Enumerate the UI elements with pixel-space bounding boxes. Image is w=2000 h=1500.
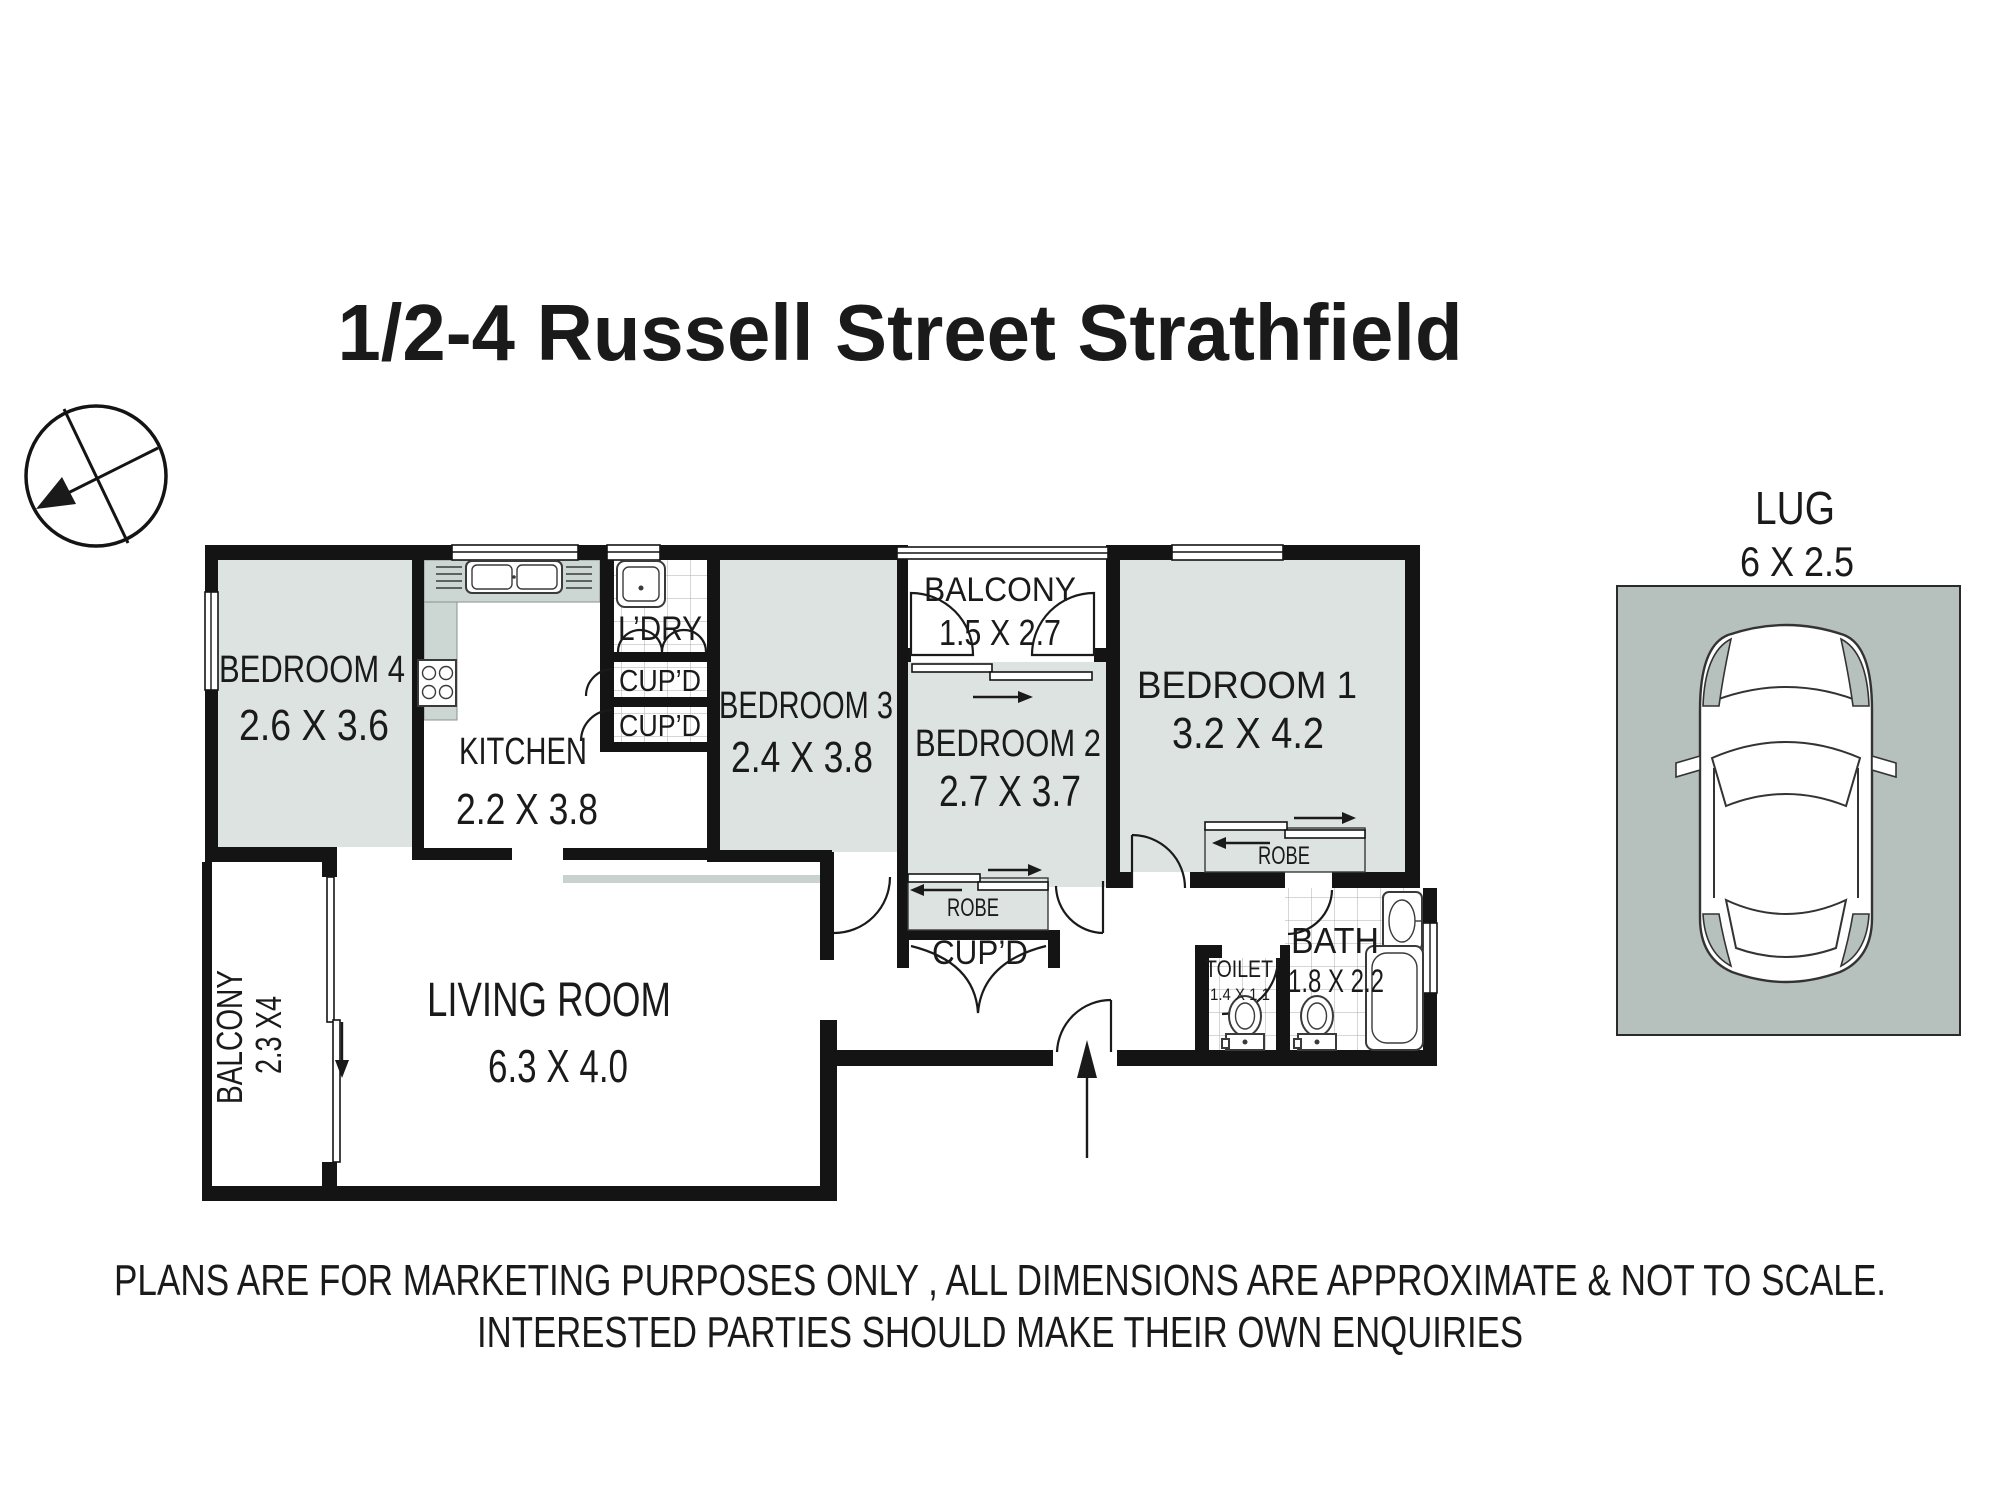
bedroom4-dims: 2.6 X 3.6 <box>239 701 389 750</box>
bedroom2-dims: 2.7 X 3.7 <box>939 767 1081 816</box>
disclaimer-line1: PLANS ARE FOR MARKETING PURPOSES ONLY , … <box>114 1256 1886 1305</box>
bath-dims: 1.8 X 2.2 <box>1288 963 1384 999</box>
disclaimer: PLANS ARE FOR MARKETING PURPOSES ONLY , … <box>114 1256 1886 1357</box>
balcony-top-label: BALCONY <box>924 571 1076 609</box>
car-icon <box>1676 625 1896 982</box>
bedroom1-label: BEDROOM 1 <box>1137 665 1357 707</box>
cupboard1-label: CUP’D <box>619 663 701 698</box>
laundry-tub-icon <box>617 561 665 607</box>
bedroom1-dims: 3.2 X 4.2 <box>1172 709 1324 758</box>
living-room-dims: 6.3 X 4.0 <box>488 1040 628 1092</box>
balcony-top-dims: 1.5 X 2.7 <box>939 612 1061 653</box>
living-room-label: LIVING ROOM <box>427 974 671 1027</box>
robe-bedroom2-label: ROBE <box>947 894 999 922</box>
floorplan-page: 1/2-4 Russell Street Strathfield <box>0 0 2000 1500</box>
bath-vanity-icon <box>1383 892 1423 950</box>
page-title: 1/2-4 Russell Street Strathfield <box>338 288 1463 377</box>
floorplan-canvas: 1/2-4 Russell Street Strathfield <box>0 0 2000 1500</box>
garage <box>1617 586 1960 1035</box>
balcony-railing <box>897 547 1108 559</box>
bedroom3-label: BEDROOM 3 <box>719 685 893 727</box>
laundry-label: L’DRY <box>618 610 702 648</box>
toilet-label: TOILET <box>1205 956 1273 983</box>
kitchen-label: KITCHEN <box>459 731 587 773</box>
cupboard2-label: CUP’D <box>619 708 701 743</box>
disclaimer-line2: INTERESTED PARTIES SHOULD MAKE THEIR OWN… <box>477 1308 1523 1357</box>
compass-icon <box>26 406 166 546</box>
bedroom2-door-swing <box>1056 886 1103 933</box>
bedroom2-label: BEDROOM 2 <box>915 723 1101 765</box>
garage-label: LUG <box>1755 482 1835 534</box>
balcony-side-label: BALCONY <box>209 970 250 1104</box>
balcony-side-dims: 2.3 X4 <box>248 996 289 1074</box>
garage-dims: 6 X 2.5 <box>1740 538 1854 585</box>
entry-arrow-icon <box>1077 1040 1097 1158</box>
bedroom4-label: BEDROOM 4 <box>219 649 405 691</box>
kitchen-dims: 2.2 X 3.8 <box>456 785 598 834</box>
cooktop-icon <box>418 660 456 706</box>
bedroom1-window-icon <box>1172 545 1283 560</box>
toilet-dims: 1.4 X 1.1 <box>1210 985 1270 1004</box>
bath-label: BATH <box>1291 920 1379 961</box>
bath-window-icon <box>1423 923 1437 993</box>
cupboard-hall-label: CUP’D <box>932 934 1028 972</box>
bedroom3-dims: 2.4 X 3.8 <box>731 733 873 782</box>
bedroom4-window-icon <box>205 592 218 690</box>
bedroom3-door-swing <box>834 877 890 933</box>
robe-bedroom1-label: ROBE <box>1258 842 1310 870</box>
entry-door-swing <box>1057 1000 1111 1052</box>
laundry-window-icon <box>607 545 660 560</box>
kitchen-window-icon <box>452 545 578 560</box>
